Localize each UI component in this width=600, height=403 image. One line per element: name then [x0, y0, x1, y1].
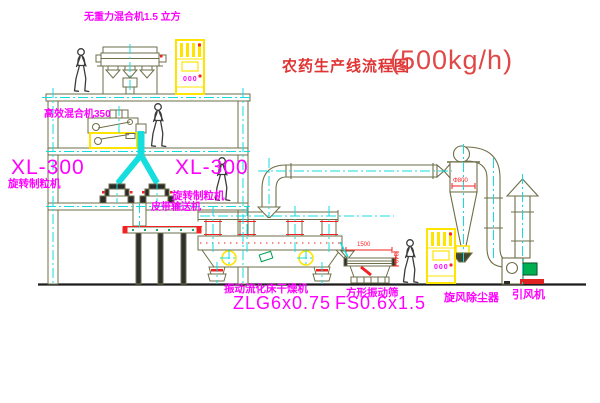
- cabinet-top-display: 000: [183, 76, 198, 83]
- control-cabinet-bottom: [427, 229, 455, 283]
- label-granulator-right-name: 旋转制粒机: [172, 191, 225, 202]
- label-high-efficiency-mixer: 高效混合机350: [44, 110, 111, 120]
- label-cyclone-name: 旋风除尘器: [444, 293, 499, 304]
- mixer-drive-box: [90, 133, 137, 148]
- exhaust-duct: [262, 163, 451, 207]
- dim-screen-length: 1500: [357, 242, 370, 248]
- label-screen-model: FS0.6x1.5: [335, 294, 426, 312]
- page-title-capacity: (500kg/h): [390, 45, 513, 76]
- zero-gravity-mixer: [96, 47, 166, 94]
- label-granulator-left-model: XL-300: [11, 157, 85, 178]
- control-cabinet-top: [176, 40, 204, 94]
- person-figure: [404, 240, 418, 283]
- fan-base: [520, 279, 544, 284]
- vibrating-screen: [341, 251, 395, 283]
- label-granulator-right-model: XL-300: [175, 157, 249, 178]
- label-dryer-model: ZLG6x0.75: [233, 294, 331, 312]
- belt-conveyor: [125, 203, 200, 284]
- label-granulator-left-name: 旋转制粒机: [8, 179, 61, 190]
- person-figure: [152, 104, 166, 147]
- person-figure: [75, 49, 89, 92]
- cabinet-bottom-display: 000: [434, 264, 449, 271]
- dim-screen-height: 340: [392, 253, 398, 263]
- label-fan-name: 引风机: [512, 290, 545, 301]
- label-gravity-mixer: 无重力混合机1.5 立方: [84, 13, 181, 23]
- label-belt-conveyor: 皮带输送机: [151, 203, 201, 213]
- flow-diagram-canvas: 农药生产线流程图 (500kg/h) 无重力混合机1.5 立方 高效混合机350…: [0, 0, 600, 403]
- fan-motor: [523, 263, 537, 275]
- dim-cyclone-diameter: Φ800: [453, 178, 468, 184]
